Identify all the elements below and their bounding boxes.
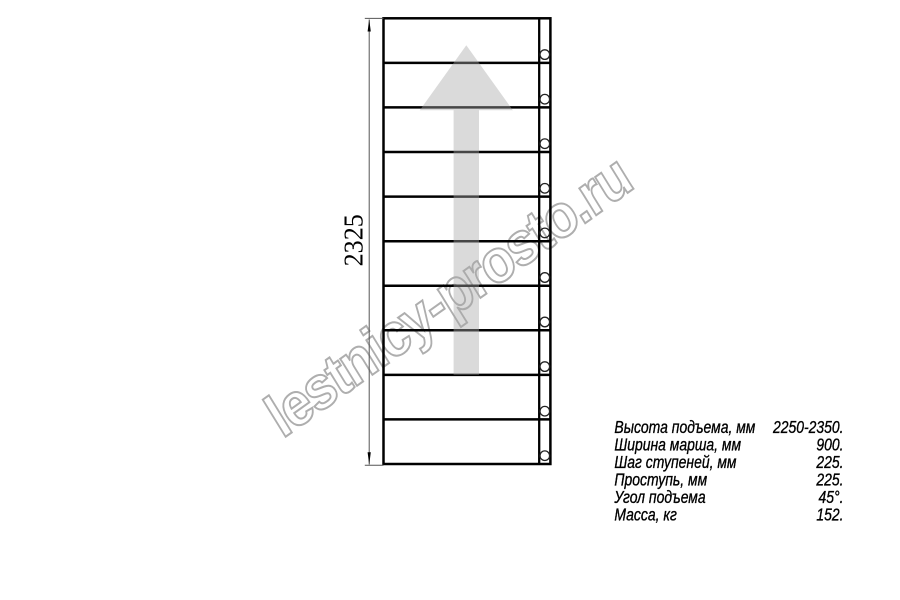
svg-text:Масса, кг: Масса, кг: [614, 505, 676, 525]
svg-text:lestnicy-prosto.ru: lestnicy-prosto.ru: [255, 142, 643, 450]
svg-text:2325: 2325: [338, 214, 369, 266]
svg-text:152.: 152.: [816, 505, 843, 525]
